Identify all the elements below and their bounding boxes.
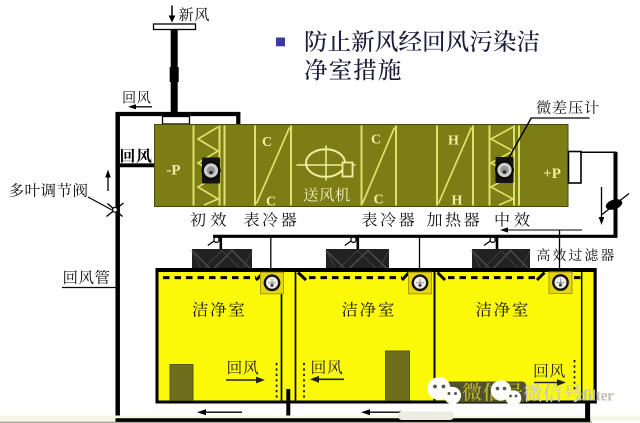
svg-text:C: C	[373, 193, 383, 208]
svg-text:-P: -P	[166, 163, 180, 179]
svg-text:C: C	[266, 195, 276, 210]
svg-text:H: H	[452, 194, 463, 209]
svg-text:+P: +P	[543, 166, 561, 182]
svg-text:H: H	[448, 134, 459, 149]
svg-text:C: C	[371, 133, 381, 148]
svg-text::filter: :filter	[578, 388, 614, 405]
svg-text:C: C	[262, 135, 272, 150]
